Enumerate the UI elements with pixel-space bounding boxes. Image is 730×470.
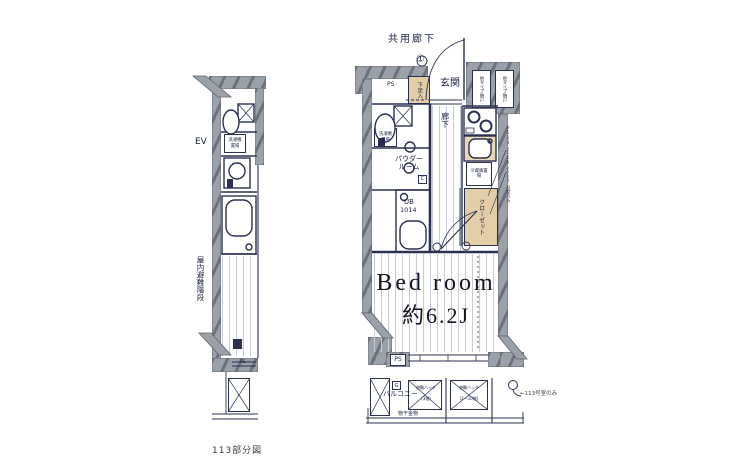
hallway-label: 廊下 — [440, 112, 450, 128]
leftplan-ps-label: PS — [240, 360, 246, 365]
ev-label: EV — [195, 137, 207, 148]
leftplan-top-diagonal-wall — [193, 76, 231, 97]
leftplan-bottom-diagonal-wall — [199, 333, 231, 355]
leftplan-bathtub — [226, 200, 252, 236]
downspout-symbol — [509, 381, 518, 390]
side-note-label: ※113・115・117号室のみ — [505, 126, 510, 216]
leftplan-washer-label: 洗濯機置場 — [227, 135, 243, 152]
hatch-right-line2: (2〜10階) — [454, 397, 484, 402]
storage-right-label: 他タイプ納戸 — [495, 71, 514, 107]
ps-bottom-label: PS — [390, 354, 406, 366]
linework-layer — [0, 0, 730, 470]
bathtub — [400, 221, 426, 249]
powder-room-label: パウダールーム — [392, 152, 426, 174]
fixture-mark-1 — [433, 243, 441, 251]
storage-left-label: 他タイプ納戸 — [472, 71, 491, 107]
washer-label: 洗濯機置場 — [377, 129, 394, 146]
bottom-note-label: ←113号室のみ — [520, 391, 557, 398]
g-mark-label: G — [392, 381, 401, 390]
leftplan-toilet-bowl — [223, 110, 239, 134]
shoe-box-label: 下足入 — [408, 77, 430, 103]
laundry-fitting-label: 物干金物 — [397, 411, 419, 417]
hatch-right-line1: 避難ハッチ — [454, 386, 484, 391]
floor-plan-image: 共用廊下 ① 玄関 PS 下足入 他タイプ納戸 他タイプ納戸 廊下 洗濯機置場 … — [0, 0, 730, 470]
hatch-left-line1: 避難ハッチ — [412, 386, 440, 391]
hatch-left-line2: (3階) — [412, 397, 440, 402]
genkan-label: 玄関 — [440, 78, 460, 90]
stove-counter — [464, 108, 496, 135]
indoor-stairs-label: 屋内避難階段 — [196, 256, 205, 326]
common-corridor-label: 共用廊下 — [388, 34, 436, 46]
fridge-label: 冷蔵庫置場 — [470, 163, 488, 185]
c-mark-label: C — [418, 175, 427, 184]
closet-label: クローゼット — [464, 189, 498, 245]
mainplan-bottom-right-diagonal-wall — [498, 336, 527, 359]
entry-number-label: ① — [416, 54, 425, 66]
bedroom-size-label: 約6.2J — [374, 302, 498, 330]
entry-door-arc — [426, 40, 464, 100]
washbasin-bowl — [405, 142, 415, 152]
unit-bath-size-label: 1014 — [400, 207, 417, 215]
plan-caption: 113部分図 — [212, 446, 262, 457]
bedroom-name-label: Bed room — [374, 268, 498, 298]
ps-top-label: PS — [387, 81, 394, 88]
